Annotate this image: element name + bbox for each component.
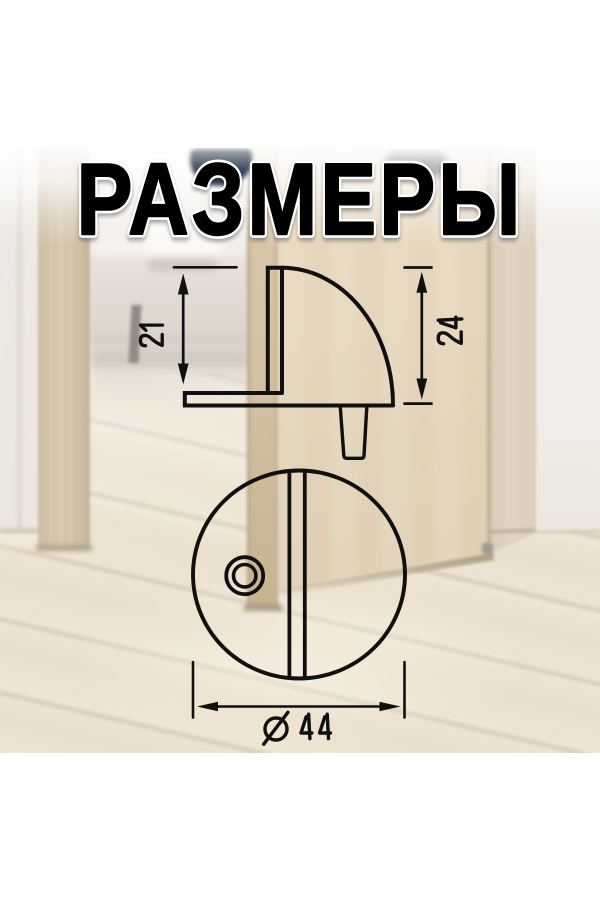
svg-text:РАЗМЕРЫ: РАЗМЕРЫ [77,142,524,255]
